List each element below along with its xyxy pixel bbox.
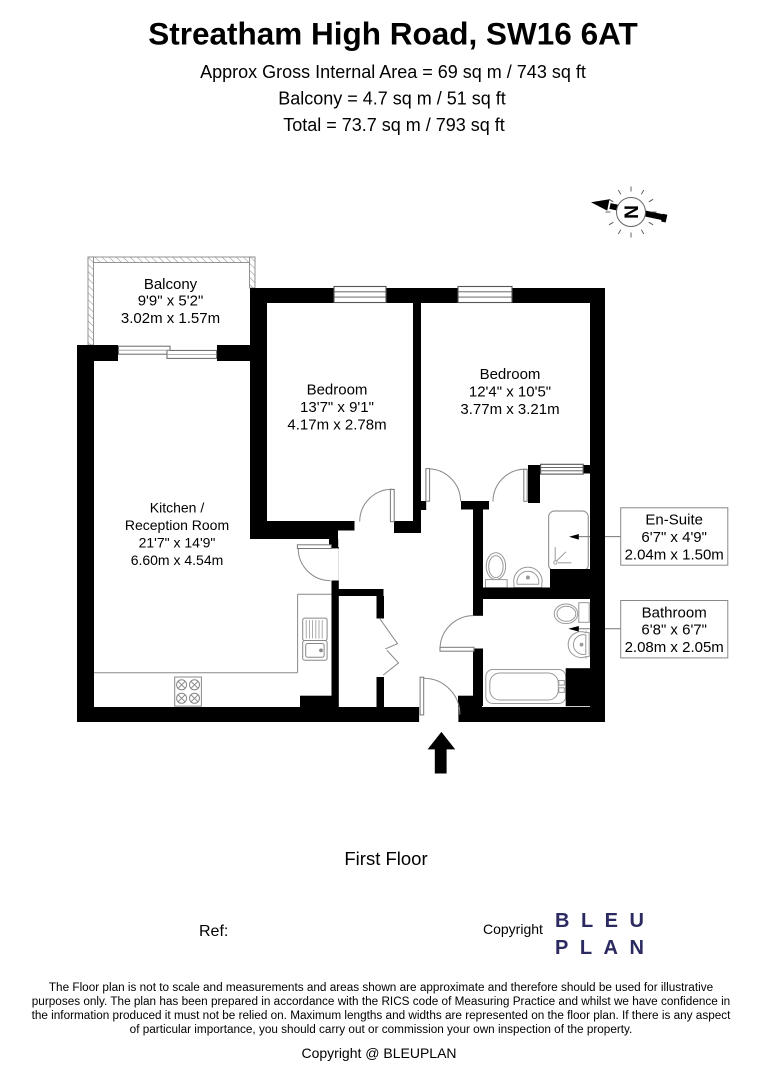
- svg-text:En-Suite: En-Suite: [645, 512, 703, 529]
- svg-text:2.04m x 1.50m: 2.04m x 1.50m: [625, 547, 724, 564]
- svg-text:Approx Gross Internal Area = 6: Approx Gross Internal Area = 69 sq m / 7…: [200, 62, 586, 82]
- svg-text:Balcony: Balcony: [144, 276, 198, 293]
- svg-text:Reception Room: Reception Room: [125, 517, 229, 533]
- svg-text:Copyright: Copyright: [483, 921, 543, 937]
- svg-text:6'8" x 6'7": 6'8" x 6'7": [641, 622, 707, 639]
- svg-text:Copyright @ BLEUPLAN: Copyright @ BLEUPLAN: [301, 1045, 456, 1061]
- svg-text:First Floor: First Floor: [344, 848, 427, 869]
- svg-text:3.02m x 1.57m: 3.02m x 1.57m: [121, 310, 220, 327]
- svg-text:Bedroom: Bedroom: [307, 382, 368, 399]
- svg-text:12'4" x 10'5": 12'4" x 10'5": [469, 384, 551, 401]
- svg-text:Total = 73.7 sq m / 793 sq ft: Total = 73.7 sq m / 793 sq ft: [283, 115, 505, 135]
- svg-text:BLEU: BLEU: [555, 910, 655, 932]
- svg-text:4.17m x 2.78m: 4.17m x 2.78m: [287, 417, 386, 434]
- svg-text:2.08m x 2.05m: 2.08m x 2.05m: [625, 639, 724, 656]
- svg-text:Balcony = 4.7 sq m / 51 sq ft: Balcony = 4.7 sq m / 51 sq ft: [278, 89, 506, 109]
- svg-text:purposes only. The plan has be: purposes only. The plan has been prepare…: [32, 995, 730, 1008]
- svg-text:Ref:: Ref:: [199, 923, 228, 940]
- svg-text:The Floor plan is not to scale: The Floor plan is not to scale and measu…: [49, 981, 714, 994]
- svg-text:13'7" x 9'1": 13'7" x 9'1": [300, 399, 374, 416]
- svg-text:of particular importance, you: of particular importance, you should car…: [130, 1023, 633, 1036]
- svg-text:Bedroom: Bedroom: [480, 366, 541, 383]
- svg-text:6.60m x 4.54m: 6.60m x 4.54m: [131, 552, 224, 568]
- svg-text:3.77m x 3.21m: 3.77m x 3.21m: [460, 401, 559, 418]
- svg-text:N: N: [620, 205, 641, 219]
- svg-text:Kitchen /: Kitchen /: [150, 500, 205, 516]
- svg-text:the information produced it mu: the information produced it must not be …: [32, 1009, 732, 1022]
- svg-text:Bathroom: Bathroom: [642, 604, 707, 621]
- svg-text:6'7" x 4'9": 6'7" x 4'9": [641, 529, 707, 546]
- svg-text:21'7" x 14'9": 21'7" x 14'9": [139, 535, 216, 551]
- svg-text:9'9" x 5'2": 9'9" x 5'2": [138, 293, 204, 310]
- svg-text:Streatham High Road, SW16 6AT: Streatham High Road, SW16 6AT: [148, 16, 638, 52]
- svg-text:PLAN: PLAN: [555, 937, 655, 959]
